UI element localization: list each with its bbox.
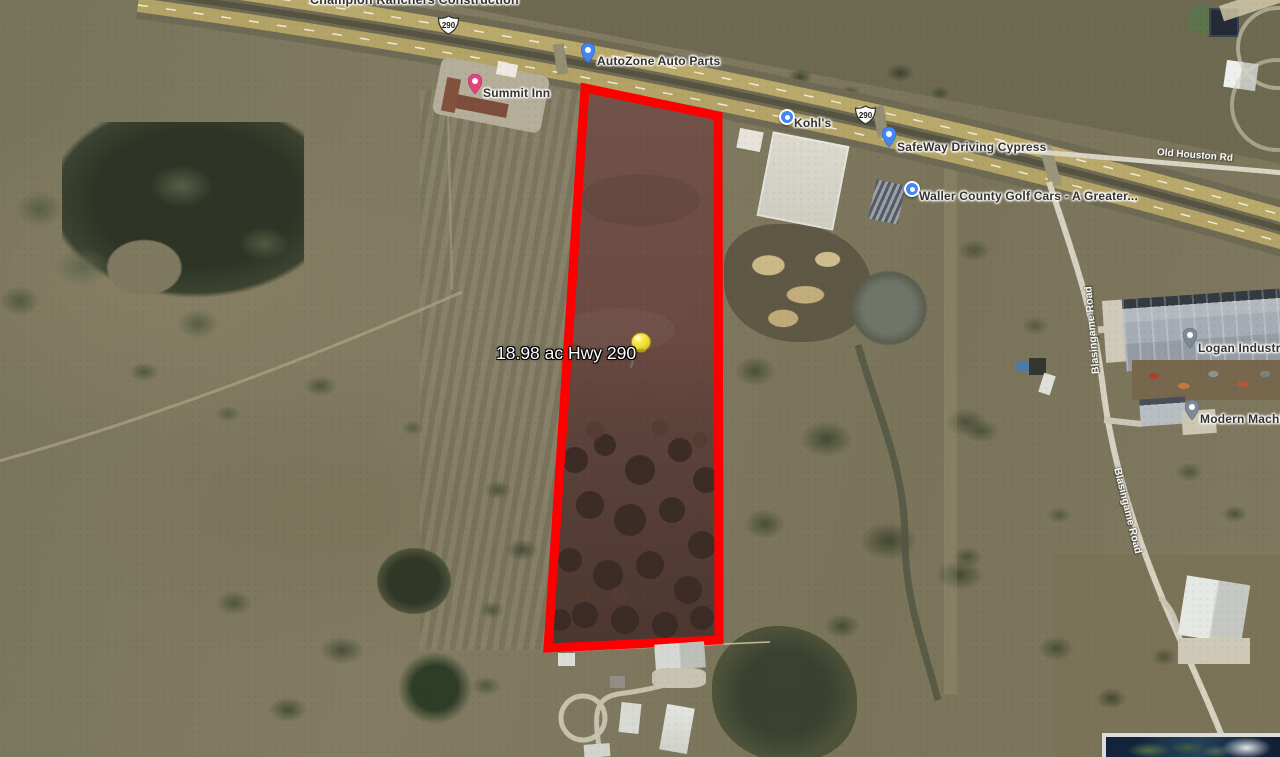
parcel-acreage-label: 18.98 ac Hwy 290: [496, 343, 636, 364]
poi-label-summit-inn[interactable]: Summit Inn: [483, 86, 550, 100]
poi-label-safeway-driving[interactable]: SafeWay Driving Cypress: [897, 140, 1047, 154]
golf-cars-building: [868, 179, 906, 224]
shed: [558, 653, 575, 666]
powerline-clearing: [944, 128, 957, 694]
poi-label-modern-machine[interactable]: Modern Machine: [1200, 412, 1280, 426]
us-290-shield: 290: [437, 15, 460, 40]
house-bottom: [584, 743, 611, 757]
summit-inn-lodging-pin-icon[interactable]: [468, 74, 482, 99]
route-number: 290: [442, 21, 456, 30]
pond-south: [394, 648, 476, 728]
brush-east-of-parcel: [718, 320, 1028, 660]
modern-machine-building: [1139, 396, 1187, 426]
road-label-blasingame-south: Blasingame Road: [1111, 467, 1144, 555]
poi-label-waller-golf-cars[interactable]: Waller County Golf Cars - A Greater...: [919, 189, 1138, 203]
satellite-map-canvas[interactable]: 290 290: [0, 0, 1280, 757]
trailer: [1038, 373, 1056, 396]
small-building: [736, 128, 763, 152]
pond-west: [62, 122, 304, 304]
tree-cluster-east-edge: [1150, 430, 1280, 570]
modern-machine-pin-icon[interactable]: [1185, 400, 1199, 425]
barn-south: [654, 641, 706, 670]
house: [659, 704, 695, 754]
logan-industries-building: [1122, 289, 1280, 372]
poi-label-kohls[interactable]: Kohl's: [794, 116, 831, 130]
pond-middle: [368, 540, 460, 622]
us-290-shield: 290: [854, 105, 877, 130]
road-label-blasingame-north: Blasingame Road: [1082, 286, 1102, 375]
safeway-pin-icon[interactable]: [882, 127, 896, 152]
barn-south-apron: [652, 668, 706, 688]
pond-gray: [846, 266, 932, 350]
logan-industries-pin-icon[interactable]: [1183, 328, 1197, 353]
house: [618, 702, 641, 734]
poi-label-logan-industries[interactable]: Logan Industries: [1198, 341, 1280, 355]
small-house: [610, 676, 625, 688]
barn-bottom-right-apron: [1178, 638, 1250, 664]
poi-label-autozone[interactable]: AutoZone Auto Parts: [597, 54, 720, 68]
poi-label-champion-ranchers[interactable]: Champion Ranchers Construction: [310, 0, 519, 7]
forest-bottom-middle: [712, 626, 857, 757]
logan-storage-yard: [1132, 360, 1280, 400]
overview-map-inset[interactable]: [1102, 733, 1280, 757]
route-number: 290: [859, 111, 873, 120]
concrete-pad: [757, 131, 850, 230]
autozone-pin-icon[interactable]: [581, 43, 595, 68]
kohls-dot-pin-icon[interactable]: [779, 109, 795, 125]
waller-golf-cars-dot-pin-icon[interactable]: [904, 181, 920, 197]
barn-bottom-right: [1178, 575, 1251, 644]
